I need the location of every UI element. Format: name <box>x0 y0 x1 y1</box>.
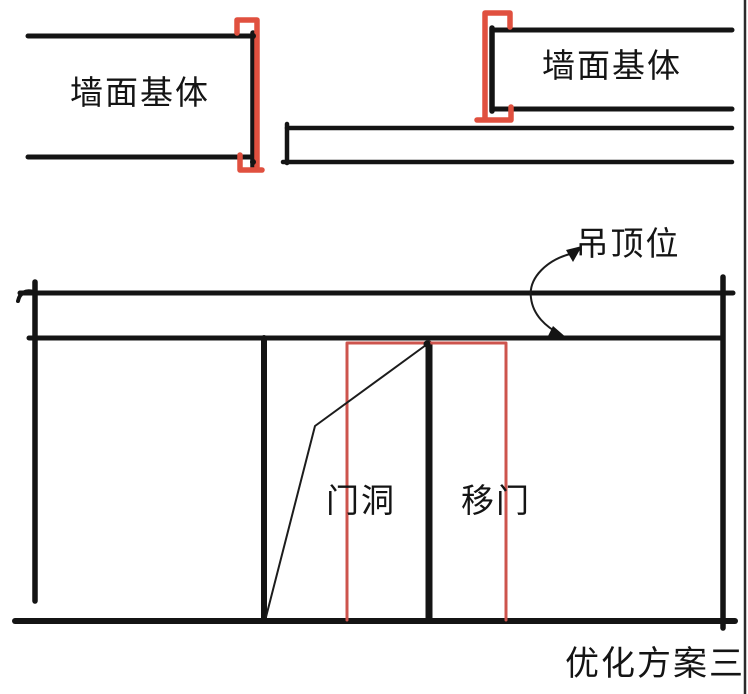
leader-junction-dot <box>424 341 431 348</box>
channel-path-left <box>237 20 262 170</box>
finish-panel <box>283 124 732 163</box>
construction-diagram: 墙面基体 墙面基体 吊顶位 门洞 移门 优化方案三 <box>0 0 748 694</box>
wall-left-bottom-joint-dot <box>250 159 256 165</box>
wall-base-label-left: 墙面基体 <box>70 74 210 111</box>
wall-section-right <box>283 13 732 163</box>
door-opening-label: 门洞 <box>326 482 396 519</box>
elevation-diagram <box>15 253 735 628</box>
metal-channel-profile-left <box>237 20 262 170</box>
wall-base-label-right: 墙面基体 <box>542 47 682 84</box>
ceiling-position-label: 吊顶位 <box>576 225 681 262</box>
leader-lines <box>266 253 574 617</box>
drawing-canvas: 墙面基体 墙面基体 吊顶位 门洞 移门 优化方案三 <box>0 0 748 694</box>
caption-plan-three: 优化方案三 <box>565 645 745 683</box>
sliding-door-label: 移门 <box>461 482 531 519</box>
labels-layer: 墙面基体 墙面基体 吊顶位 门洞 移门 优化方案三 <box>70 47 745 683</box>
wall-left-top-joint-dot <box>250 33 256 39</box>
ceiling-top-line-hook <box>18 291 34 301</box>
